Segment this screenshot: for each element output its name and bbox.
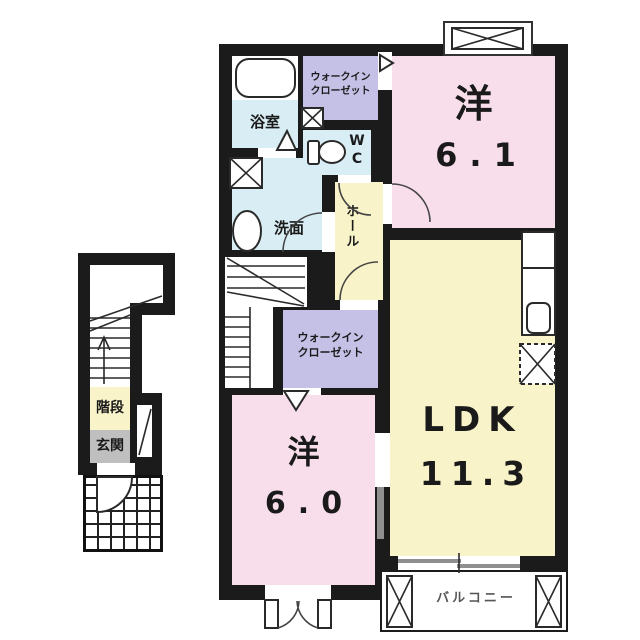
bedroom2-sliding-gap bbox=[375, 433, 390, 487]
bedroom1-name: 洋 bbox=[392, 84, 555, 126]
bedroom1-door-gap bbox=[383, 184, 392, 224]
stairwell-upper-room bbox=[90, 265, 163, 303]
vent-unit-outer bbox=[443, 21, 533, 56]
hall: ホール bbox=[335, 182, 383, 300]
hall-label: ホール bbox=[343, 204, 357, 249]
wic-mid-label-1: ウォークイン bbox=[283, 332, 378, 344]
bedroom1: 洋 6.1 bbox=[392, 56, 555, 228]
wc-label-w: W bbox=[347, 134, 367, 149]
ldk: LDK 11.3 bbox=[390, 240, 555, 556]
wic-mid-door-gap bbox=[283, 388, 321, 395]
bedroom2-size: 6.0 bbox=[238, 487, 381, 520]
walkin-closet-mid: ウォークイン クローゼット bbox=[283, 310, 378, 388]
bedroom2-name: 洋 bbox=[232, 435, 375, 470]
ldk-name: LDK bbox=[390, 402, 555, 439]
ldk-size: 11.3 bbox=[394, 456, 559, 492]
bedroom2-window-gap bbox=[265, 585, 331, 600]
bathroom-label: 浴室 bbox=[232, 114, 298, 131]
wc-label-c: C bbox=[347, 152, 367, 167]
stairs-label: 階段 bbox=[86, 401, 134, 416]
washroom: 洗面 bbox=[232, 158, 322, 250]
porch-door-gap bbox=[97, 463, 135, 475]
wic-top-label-1: ウォークイン bbox=[303, 72, 378, 84]
stairs-area: 階段 bbox=[90, 387, 130, 430]
bedroom2-casement-window bbox=[265, 600, 331, 628]
ldk-door-gap bbox=[340, 300, 378, 310]
bedroom2: 洋 6.0 bbox=[232, 395, 375, 585]
entrance-label: 玄関 bbox=[86, 439, 134, 454]
floor-plan: バルコニー 階段 玄関 浴室 ウォークイン クローゼット W C 洗面 ホール … bbox=[0, 0, 640, 640]
wc-door-gap bbox=[338, 175, 371, 183]
bathtub-zone bbox=[232, 56, 298, 100]
wic-mid-label-2: クローゼット bbox=[283, 347, 378, 359]
balcony-label: バルコニー bbox=[382, 592, 570, 606]
bathroom-door-gap bbox=[258, 148, 296, 158]
inner-stairs-lower bbox=[225, 307, 273, 388]
entrance-area: 玄関 bbox=[90, 430, 130, 463]
balcony: バルコニー bbox=[380, 570, 568, 632]
washroom-label: 洗面 bbox=[256, 220, 322, 237]
washroom-door-gap bbox=[322, 212, 335, 252]
bathroom: 浴室 bbox=[232, 100, 298, 148]
entrance-porch bbox=[83, 475, 163, 552]
bedroom1-size: 6.1 bbox=[400, 138, 563, 173]
wic-top-label-2: クローゼット bbox=[303, 86, 378, 98]
walkin-closet-top: ウォークイン クローゼット bbox=[303, 56, 378, 120]
inner-stairs-upper bbox=[225, 257, 307, 307]
wic-top-door-gap bbox=[378, 52, 392, 90]
balcony-sliding-gap bbox=[398, 556, 520, 570]
front-door-recess bbox=[137, 405, 152, 457]
